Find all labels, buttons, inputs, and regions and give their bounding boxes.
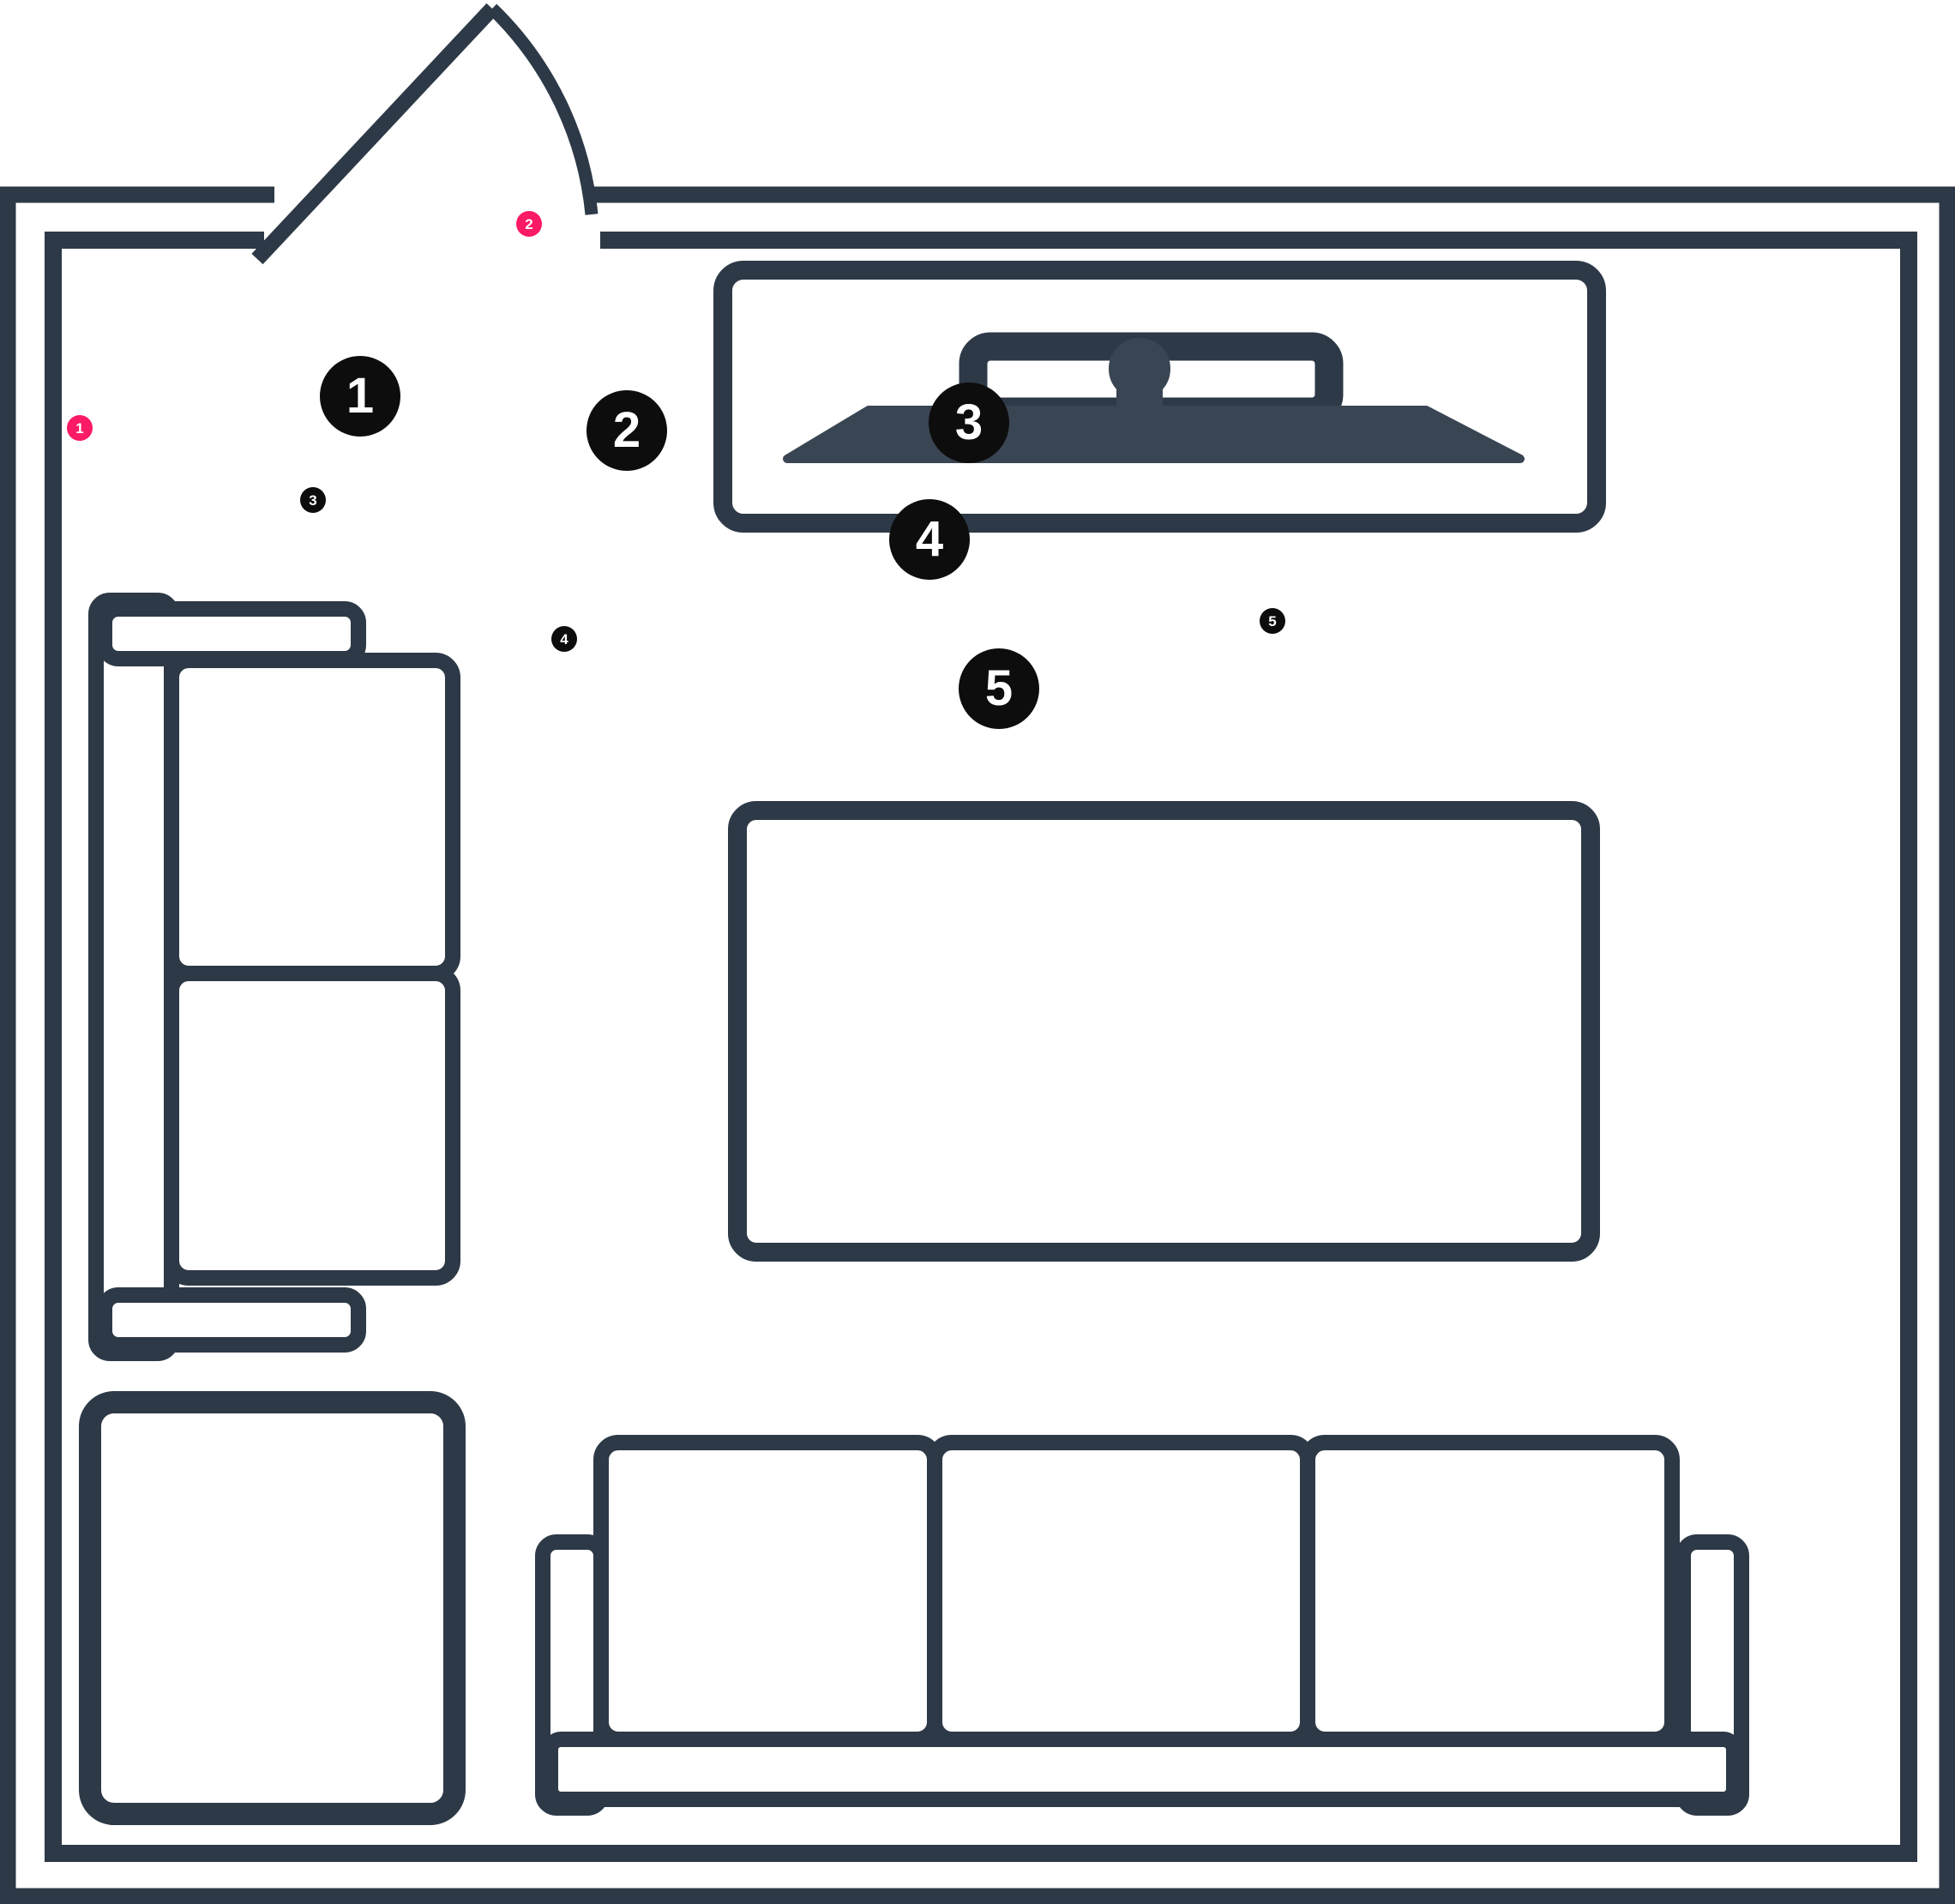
target-dot-4[interactable]: 4 <box>551 626 577 652</box>
target-dot-5[interactable]: 5 <box>1260 608 1285 634</box>
coffee-table-outline <box>737 810 1591 1252</box>
sofa2-armrest-bottom <box>105 1295 358 1345</box>
coffee-table <box>737 810 1591 1252</box>
sofa3-backrest <box>550 1739 1734 1799</box>
floor-plan-drawing <box>0 0 1955 1904</box>
door-swing-arc-icon <box>492 9 592 214</box>
sofa3-cushion-3 <box>1308 1443 1672 1739</box>
sofa2-backrest <box>96 600 171 1353</box>
side-table-outline <box>90 1402 454 1814</box>
sofa2-cushion-2 <box>171 973 453 1278</box>
sofa3-cushion-2 <box>935 1443 1308 1739</box>
answer-marker-3[interactable]: 3 <box>929 383 1009 463</box>
answer-marker-1[interactable]: 1 <box>320 356 400 437</box>
three-seat-sofa <box>543 1443 1741 1808</box>
sofa2-armrest-top <box>105 609 358 659</box>
tv-stand-icon <box>1121 369 1158 413</box>
tv-console <box>723 270 1597 523</box>
sofa2-cushion-1 <box>171 660 453 973</box>
answer-marker-5[interactable]: 5 <box>959 648 1039 729</box>
door-leaf-icon <box>257 9 492 259</box>
target-dot-pink-2[interactable]: 2 <box>516 211 542 237</box>
sofa3-cushion-1 <box>601 1443 935 1739</box>
two-seat-sofa <box>96 600 453 1353</box>
answer-marker-4[interactable]: 4 <box>889 499 970 580</box>
target-dot-pink-1[interactable]: 1 <box>67 415 93 441</box>
answer-marker-2[interactable]: 2 <box>586 390 667 471</box>
target-dot-3[interactable]: 3 <box>300 487 326 513</box>
side-table <box>90 1402 454 1814</box>
floor-plan-canvas: 1 2 3 4 5 3 4 5 1 2 <box>0 0 1955 1904</box>
